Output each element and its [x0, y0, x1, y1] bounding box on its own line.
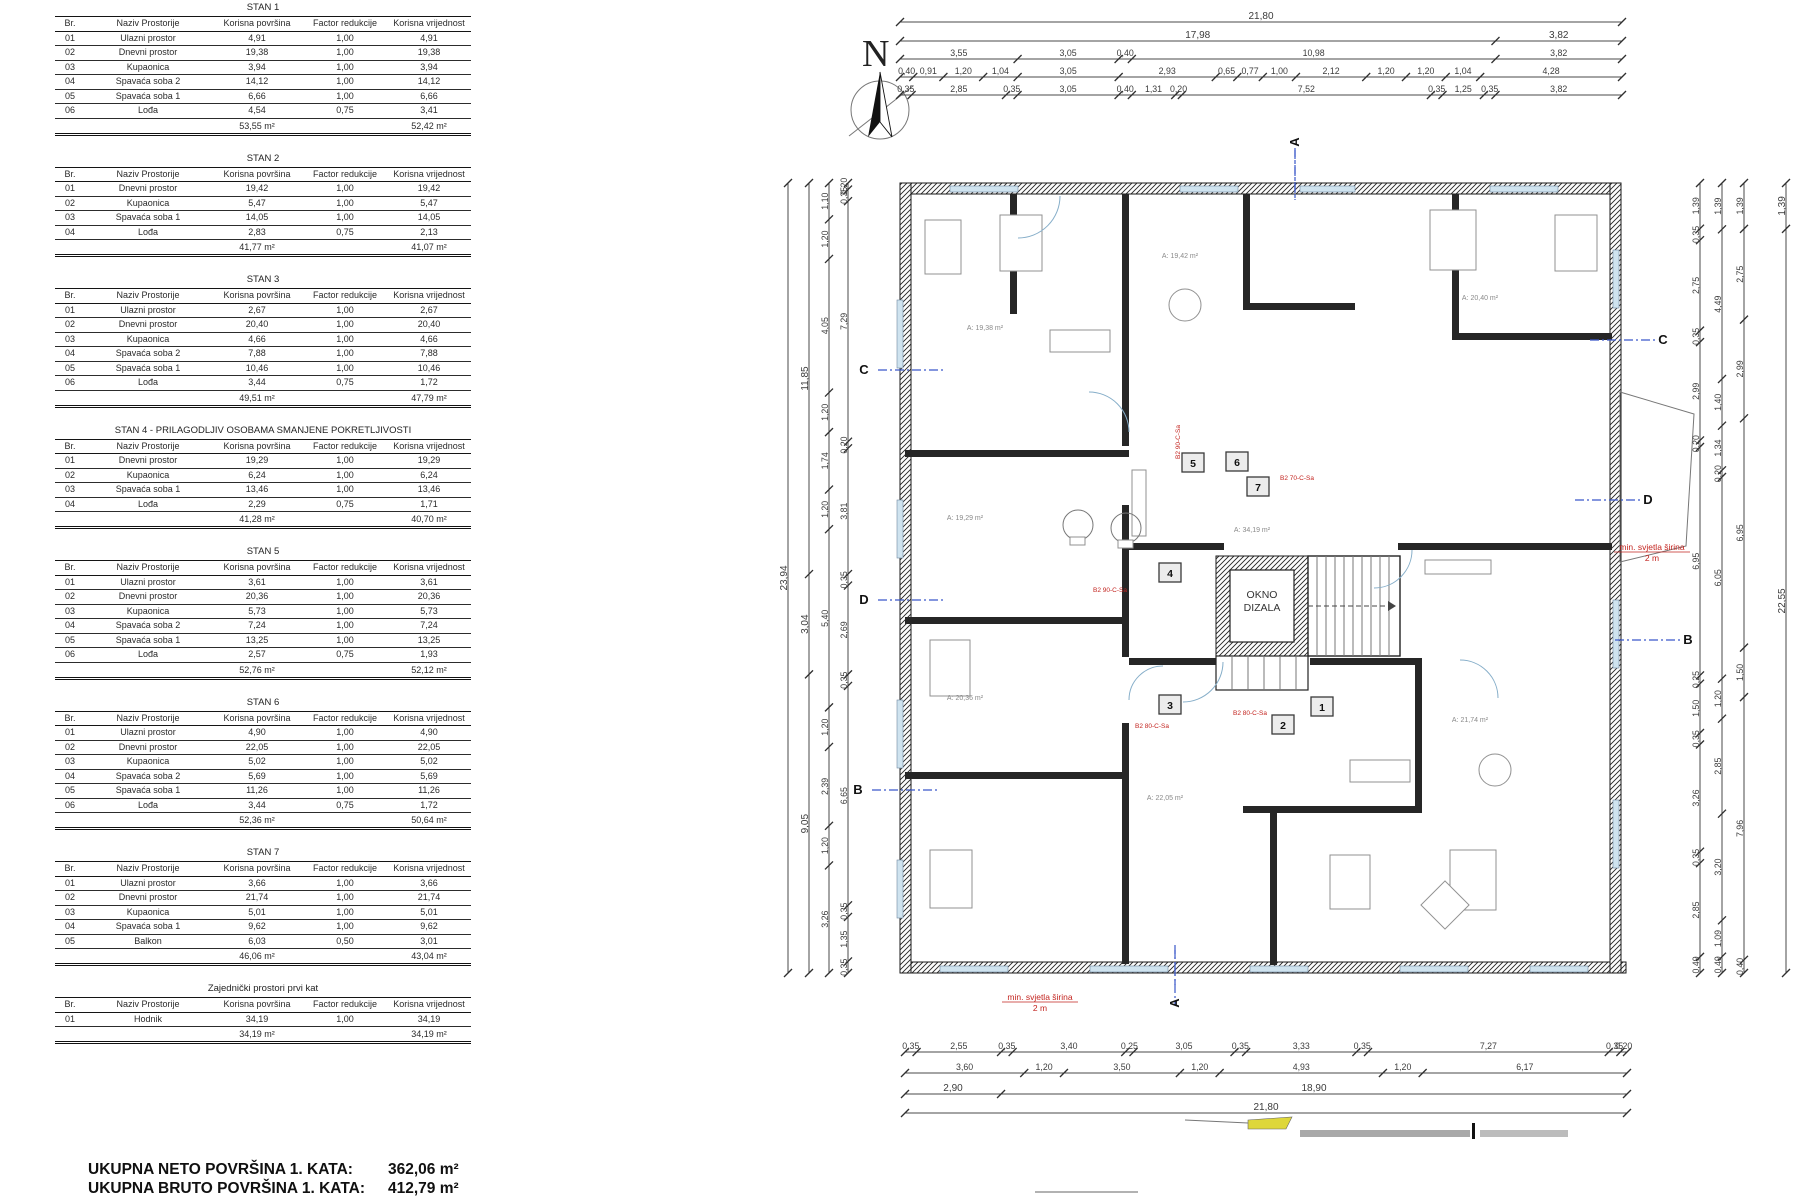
table-cell: 5,01 — [387, 906, 471, 920]
elevator-label-line2: DIZALA — [1244, 602, 1281, 614]
table-cell: Dnevni prostor — [85, 454, 211, 468]
table-cell: 1,71 — [387, 498, 471, 512]
table-cell: 01 — [55, 32, 85, 46]
dim-label: 17,98 — [1185, 30, 1210, 41]
table-cell: 14,05 — [211, 211, 303, 225]
table-cell: Spavaća soba 1 — [85, 784, 211, 798]
column-header: Br. — [55, 712, 85, 726]
column-header: Naziv Prostorije — [85, 862, 211, 876]
table-row: 04Lođa2,830,752,13 — [55, 226, 471, 241]
table-cell: 5,47 — [387, 197, 471, 211]
dim-label: 0,20 — [839, 436, 849, 453]
table-cell: 4,90 — [211, 726, 303, 740]
table-cell: 5,02 — [211, 755, 303, 769]
room-area-label: A: 19,42 m² — [1162, 253, 1199, 260]
dim-label: 3,50 — [1113, 1062, 1130, 1072]
red-note: min. svjetla širina2 m — [1614, 542, 1690, 563]
total-area: 41,28 m² — [211, 512, 303, 526]
dim-label: 0,35 — [897, 84, 914, 94]
table-cell: 7,24 — [387, 619, 471, 633]
balcony-bay-outline — [1620, 392, 1694, 562]
table-cell: 0,75 — [303, 376, 387, 390]
table-cell: 19,42 — [387, 182, 471, 196]
table-cell: Kupaonica — [85, 906, 211, 920]
table-cell: 19,38 — [387, 46, 471, 60]
dim-label: 7,27 — [1480, 1041, 1497, 1051]
apartment-table: STAN 4 - PRILAGODLJIV OSOBAMA SMANJENE P… — [55, 425, 471, 530]
apartment-table: STAN 3Br.Naziv ProstorijeKorisna površin… — [55, 274, 471, 408]
table-cell: 2,29 — [211, 498, 303, 512]
table-cell: Dnevni prostor — [85, 590, 211, 604]
dim-label: 1,20 — [1378, 66, 1395, 76]
dim-label: 1,25 — [1455, 84, 1472, 94]
table-cell: 11,26 — [387, 784, 471, 798]
unit-number: 2 — [1280, 720, 1286, 732]
column-header: Naziv Prostorije — [85, 440, 211, 454]
table-cell: 01 — [55, 576, 85, 590]
summary-neto-row: UKUPNA NETO POVRŠINA 1. KATA: 362,06 m² — [88, 1160, 459, 1179]
dim-label: 1,39 — [1777, 196, 1788, 216]
table-cell: Lođa — [85, 104, 211, 118]
table-cell: 1,00 — [303, 1013, 387, 1027]
total-spacer — [85, 240, 211, 254]
dim-label: 0,25 — [1691, 671, 1701, 688]
dim-label: 18,90 — [1302, 1083, 1327, 1094]
table-cell: 1,00 — [303, 590, 387, 604]
dim-label: 0,49 — [1713, 956, 1723, 973]
table-cell: 2,57 — [211, 648, 303, 662]
table-cell: 1,00 — [303, 304, 387, 318]
dim-label: 0,35 — [1232, 1041, 1249, 1051]
table-cell: 05 — [55, 935, 85, 949]
dim-label: 1,04 — [992, 66, 1009, 76]
table-cell: 1,00 — [303, 576, 387, 590]
dim-label: 0,40 — [1117, 84, 1134, 94]
dim-label: 0,35 — [839, 671, 849, 688]
dim-label: 3,05 — [1175, 1041, 1192, 1051]
column-header: Br. — [55, 17, 85, 31]
dim-label: 0,20 — [1615, 1041, 1632, 1051]
table-cell: 6,24 — [387, 469, 471, 483]
table-title: Zajednički prostori prvi kat — [55, 983, 471, 995]
table-row: 03Kupaonica5,021,005,02 — [55, 755, 471, 770]
total-value: 47,79 m² — [387, 391, 471, 405]
table-cell: 13,25 — [387, 634, 471, 648]
table-cell: 1,00 — [303, 605, 387, 619]
column-header: Factor redukcije — [303, 862, 387, 876]
dim-label: 0,40 — [898, 66, 915, 76]
dim-label: 1,20 — [820, 501, 830, 518]
room-area-label: A: 20,36 m² — [947, 695, 984, 702]
apartment-table: STAN 7Br.Naziv ProstorijeKorisna površin… — [55, 847, 471, 966]
dim-label: 0,35 — [839, 571, 849, 588]
dim-label: 4,28 — [1543, 66, 1560, 76]
table-row: 06Lođa2,570,751,93 — [55, 648, 471, 663]
table-cell: 21,74 — [387, 891, 471, 905]
dim-label: 3,26 — [820, 911, 830, 928]
table-row: 04Spavaća soba 19,621,009,62 — [55, 920, 471, 935]
dim-label: 2,75 — [1735, 266, 1745, 283]
red-note-line2: 2 m — [1033, 1003, 1047, 1013]
table-cell: 1,93 — [387, 648, 471, 662]
table-cell: Spavaća soba 2 — [85, 75, 211, 89]
dim-chain-vertical: 23,94 — [779, 179, 792, 977]
table-cell: 10,46 — [211, 362, 303, 376]
table-cell: 03 — [55, 906, 85, 920]
dim-label: 1,74 — [820, 452, 830, 469]
neto-value: 362,06 m² — [388, 1160, 459, 1179]
table-cell: 14,12 — [387, 75, 471, 89]
table-cell: Spavaća soba 1 — [85, 920, 211, 934]
table-row: 05Balkon6,030,503,01 — [55, 935, 471, 950]
table-header-row: Br.Naziv ProstorijeKorisna površinaFacto… — [55, 560, 471, 576]
table-cell: Spavaća soba 1 — [85, 634, 211, 648]
unit-number: 7 — [1255, 482, 1261, 494]
table-cell: Lođa — [85, 376, 211, 390]
column-header: Naziv Prostorije — [85, 17, 211, 31]
dim-label: 4,05 — [820, 317, 830, 334]
neto-label: UKUPNA NETO POVRŠINA 1. KATA: — [88, 1160, 388, 1179]
section-letter: A — [1167, 998, 1182, 1008]
table-title: STAN 5 — [55, 546, 471, 558]
column-header: Factor redukcije — [303, 17, 387, 31]
table-cell: 1,00 — [303, 877, 387, 891]
table-cell: 34,19 — [387, 1013, 471, 1027]
north-label: N — [862, 33, 889, 75]
column-header: Korisna površina — [211, 561, 303, 575]
table-cell: 10,46 — [387, 362, 471, 376]
table-cell: 6,24 — [211, 469, 303, 483]
table-row: 02Dnevni prostor22,051,0022,05 — [55, 741, 471, 756]
table-cell: 1,00 — [303, 197, 387, 211]
table-row: 04Spavaća soba 27,881,007,88 — [55, 347, 471, 362]
column-header: Factor redukcije — [303, 289, 387, 303]
table-cell: 04 — [55, 619, 85, 633]
table-cell: 3,01 — [387, 935, 471, 949]
table-cell: 2,83 — [211, 226, 303, 240]
total-spacer — [55, 512, 85, 526]
table-cell: 1,00 — [303, 32, 387, 46]
table-cell: 6,66 — [387, 90, 471, 104]
table-cell: 4,91 — [387, 32, 471, 46]
table-cell: 1,00 — [303, 784, 387, 798]
dim-label: 1,20 — [1036, 1062, 1053, 1072]
table-cell: 20,36 — [211, 590, 303, 604]
table-cell: 04 — [55, 920, 85, 934]
table-row: 02Dnevni prostor21,741,0021,74 — [55, 891, 471, 906]
dim-label: 3,82 — [1550, 84, 1567, 94]
dim-label: 3,20 — [1713, 858, 1723, 875]
table-header-row: Br.Naziv ProstorijeKorisna površinaFacto… — [55, 997, 471, 1013]
table-row: 05Spavaća soba 16,661,006,66 — [55, 90, 471, 105]
table-cell: 03 — [55, 755, 85, 769]
dim-chain-horizontal: 3,553,050,4010,983,82 — [896, 48, 1626, 63]
total-area: 52,76 m² — [211, 663, 303, 677]
column-header: Naziv Prostorije — [85, 998, 211, 1012]
table-cell: Spavaća soba 2 — [85, 770, 211, 784]
column-header: Korisna površina — [211, 862, 303, 876]
dim-label: 0,49 — [1691, 956, 1701, 973]
table-cell: Spavaća soba 1 — [85, 211, 211, 225]
table-cell: 1,00 — [303, 182, 387, 196]
dim-label: 0,35 — [1354, 1041, 1371, 1051]
table-cell: 0,75 — [303, 498, 387, 512]
column-header: Korisna površina — [211, 168, 303, 182]
table-cell: 19,38 — [211, 46, 303, 60]
total-spacer — [303, 512, 387, 526]
dim-label: 3,05 — [1060, 48, 1077, 58]
table-row: 04Lođa2,290,751,71 — [55, 498, 471, 513]
summary-bruto-row: UKUPNA BRUTO POVRŠINA 1. KATA: 412,79 m² — [88, 1179, 459, 1198]
unit-badge: 2 — [1272, 715, 1294, 734]
room-area-label: A: 22,05 m² — [1147, 795, 1184, 802]
dim-label: 1,35 — [839, 931, 849, 948]
room-area-label: A: 20,40 m² — [1462, 295, 1499, 302]
unit-badge: 7 — [1247, 477, 1269, 496]
apartment-table: STAN 5Br.Naziv ProstorijeKorisna površin… — [55, 546, 471, 680]
table-row: 01Ulazni prostor4,901,004,90 — [55, 726, 471, 741]
column-header: Naziv Prostorije — [85, 289, 211, 303]
door-spec-label: B2 80-C-Sa — [1233, 710, 1267, 717]
column-header: Br. — [55, 440, 85, 454]
total-spacer — [85, 949, 211, 963]
door-spec-label: B2 90-C-Sa — [1093, 587, 1127, 594]
total-spacer — [55, 1027, 85, 1041]
dim-label: 3,82 — [1549, 30, 1569, 41]
total-spacer — [303, 1027, 387, 1041]
dim-chain-vertical: 1,101,204,051,201,741,205,401,202,391,20… — [820, 179, 833, 977]
text-smear — [1300, 1130, 1470, 1137]
table-row: 02Kupaonica5,471,005,47 — [55, 197, 471, 212]
table-cell: 5,69 — [211, 770, 303, 784]
total-spacer — [55, 391, 85, 405]
table-cell: 03 — [55, 61, 85, 75]
apartment-table: Zajednički prostori prvi katBr.Naziv Pro… — [55, 983, 471, 1044]
table-cell: Dnevni prostor — [85, 318, 211, 332]
table-cell: 1,00 — [303, 211, 387, 225]
table-cell: 2,67 — [211, 304, 303, 318]
column-header: Korisna vrijednost — [387, 440, 471, 454]
column-header: Korisna površina — [211, 440, 303, 454]
dim-label: 2,85 — [1713, 758, 1723, 775]
total-spacer — [55, 949, 85, 963]
table-cell: 13,46 — [211, 483, 303, 497]
table-total-row: 52,76 m²52,12 m² — [55, 663, 471, 680]
table-cell: 03 — [55, 333, 85, 347]
table-cell: 06 — [55, 648, 85, 662]
dim-label: 1,39 — [1735, 197, 1745, 214]
dim-label: 3,33 — [1293, 1041, 1310, 1051]
column-header: Factor redukcije — [303, 440, 387, 454]
dim-label: 21,80 — [1248, 11, 1273, 22]
table-cell: 3,66 — [387, 877, 471, 891]
table-title: STAN 7 — [55, 847, 471, 859]
table-cell: 1,00 — [303, 46, 387, 60]
table-cell: Ulazni prostor — [85, 726, 211, 740]
dim-label: 4,93 — [1293, 1062, 1310, 1072]
table-header-row: Br.Naziv ProstorijeKorisna površinaFacto… — [55, 167, 471, 183]
table-cell: Kupaonica — [85, 605, 211, 619]
section-letter: C — [859, 362, 869, 377]
dim-label: 3,82 — [1550, 48, 1567, 58]
table-title: STAN 4 - PRILAGODLJIV OSOBAMA SMANJENE P… — [55, 425, 471, 437]
table-header-row: Br.Naziv ProstorijeKorisna površinaFacto… — [55, 439, 471, 455]
table-total-row: 41,28 m²40,70 m² — [55, 512, 471, 529]
dim-label: 1,20 — [1394, 1062, 1411, 1072]
table-title: STAN 6 — [55, 697, 471, 709]
table-cell: Lođa — [85, 648, 211, 662]
table-cell: 3,41 — [387, 104, 471, 118]
table-cell: Spavaća soba 2 — [85, 619, 211, 633]
dim-label: 2,55 — [950, 1041, 967, 1051]
column-header: Br. — [55, 168, 85, 182]
total-value: 41,07 m² — [387, 240, 471, 254]
total-spacer — [303, 813, 387, 827]
table-cell: 1,00 — [303, 726, 387, 740]
table-cell: Dnevni prostor — [85, 182, 211, 196]
table-cell: 04 — [55, 498, 85, 512]
red-note-line1: min. svjetla širina — [1007, 992, 1072, 1002]
dim-label: 2,99 — [1691, 383, 1701, 400]
table-cell: Ulazni prostor — [85, 877, 211, 891]
column-header: Korisna površina — [211, 712, 303, 726]
red-note-line2: 2 m — [1645, 553, 1659, 563]
table-cell: 3,94 — [387, 61, 471, 75]
dim-label: 1,20 — [820, 404, 830, 421]
table-cell: 04 — [55, 226, 85, 240]
table-cell: 19,42 — [211, 182, 303, 196]
total-spacer — [85, 391, 211, 405]
table-cell: 7,88 — [387, 347, 471, 361]
column-header: Naziv Prostorije — [85, 168, 211, 182]
table-cell: 13,46 — [387, 483, 471, 497]
table-cell: 5,73 — [387, 605, 471, 619]
table-cell: 0,75 — [303, 648, 387, 662]
table-cell: 1,72 — [387, 376, 471, 390]
dim-label: 3,60 — [956, 1062, 973, 1072]
table-row: 02Dnevni prostor20,361,0020,36 — [55, 590, 471, 605]
section-letter: C — [1658, 332, 1668, 347]
dim-label: 1,20 — [820, 230, 830, 247]
table-cell: 1,00 — [303, 318, 387, 332]
dim-label: 21,80 — [1253, 1102, 1278, 1113]
dim-label: 2,39 — [820, 778, 830, 795]
table-cell: 1,00 — [303, 891, 387, 905]
table-cell: 1,00 — [303, 634, 387, 648]
table-cell: 04 — [55, 75, 85, 89]
total-spacer — [303, 119, 387, 133]
table-cell: 0,75 — [303, 104, 387, 118]
bruto-value: 412,79 m² — [388, 1179, 459, 1198]
total-spacer — [303, 391, 387, 405]
column-header: Korisna površina — [211, 17, 303, 31]
table-cell: 05 — [55, 634, 85, 648]
dim-label: 22,55 — [1777, 588, 1788, 613]
total-spacer — [85, 1027, 211, 1041]
dim-label: 7,29 — [839, 313, 849, 330]
dim-label: 1,20 — [955, 66, 972, 76]
table-total-row: 46,06 m²43,04 m² — [55, 949, 471, 966]
dim-label: 6,95 — [1691, 553, 1701, 570]
table-cell: Kupaonica — [85, 333, 211, 347]
table-cell: Lođa — [85, 226, 211, 240]
table-cell: 2,67 — [387, 304, 471, 318]
table-cell: 4,66 — [211, 333, 303, 347]
table-cell: 3,61 — [211, 576, 303, 590]
table-cell: 21,74 — [211, 891, 303, 905]
dim-label: 0,35 — [1428, 84, 1445, 94]
table-cell: 1,00 — [303, 362, 387, 376]
total-spacer — [85, 119, 211, 133]
table-cell: 11,26 — [211, 784, 303, 798]
total-area: 52,36 m² — [211, 813, 303, 827]
total-value: 52,42 m² — [387, 119, 471, 133]
table-total-row: 49,51 m²47,79 m² — [55, 391, 471, 408]
table-cell: 1,00 — [303, 469, 387, 483]
table-cell: 0,75 — [303, 799, 387, 813]
table-cell: 01 — [55, 182, 85, 196]
dim-label: 6,65 — [839, 787, 849, 804]
table-cell: 3,94 — [211, 61, 303, 75]
dim-label: 10,98 — [1303, 48, 1325, 58]
dim-label: 6,05 — [1713, 569, 1723, 586]
table-cell: 14,12 — [211, 75, 303, 89]
table-cell: 6,03 — [211, 935, 303, 949]
dim-label: 0,35 — [998, 1041, 1015, 1051]
dim-label: 6,95 — [1735, 524, 1745, 541]
dim-label: 11,85 — [800, 366, 811, 391]
table-row: 01Ulazni prostor4,911,004,91 — [55, 32, 471, 47]
room-area-label: A: 19,38 m² — [967, 325, 1004, 332]
column-header: Naziv Prostorije — [85, 561, 211, 575]
door-spec-label: B2 80-C-Sa — [1135, 723, 1169, 730]
table-cell: 02 — [55, 197, 85, 211]
dim-label: 3,26 — [1691, 789, 1701, 806]
table-cell: Spavaća soba 1 — [85, 362, 211, 376]
unit-number: 4 — [1167, 568, 1173, 580]
column-header: Korisna vrijednost — [387, 862, 471, 876]
column-header: Factor redukcije — [303, 712, 387, 726]
dim-label: 3,40 — [1060, 1041, 1077, 1051]
table-cell: Kupaonica — [85, 197, 211, 211]
section-letter: D — [859, 592, 868, 607]
table-cell: Kupaonica — [85, 755, 211, 769]
table-cell: 1,00 — [303, 333, 387, 347]
dim-label: 1,40 — [1713, 394, 1723, 411]
total-spacer — [85, 512, 211, 526]
table-row: 05Spavaća soba 110,461,0010,46 — [55, 362, 471, 377]
table-cell: 01 — [55, 1013, 85, 1027]
dim-label: 2,75 — [1691, 277, 1701, 294]
table-cell: 3,44 — [211, 799, 303, 813]
dim-label: 0,35 — [1481, 84, 1498, 94]
table-cell: 34,19 — [211, 1013, 303, 1027]
column-header: Korisna vrijednost — [387, 712, 471, 726]
table-cell: 05 — [55, 784, 85, 798]
table-cell: 02 — [55, 590, 85, 604]
unit-number: 1 — [1319, 702, 1325, 714]
table-cell: 1,00 — [303, 61, 387, 75]
summary-block: UKUPNA NETO POVRŠINA 1. KATA: 362,06 m² … — [88, 1160, 459, 1198]
table-cell: 9,62 — [387, 920, 471, 934]
table-cell: 06 — [55, 104, 85, 118]
table-row: 03Spavaća soba 113,461,0013,46 — [55, 483, 471, 498]
table-total-row: 52,36 m²50,64 m² — [55, 813, 471, 830]
total-value: 43,04 m² — [387, 949, 471, 963]
table-cell: 04 — [55, 347, 85, 361]
unit-badge: 1 — [1311, 697, 1333, 716]
total-spacer — [303, 949, 387, 963]
